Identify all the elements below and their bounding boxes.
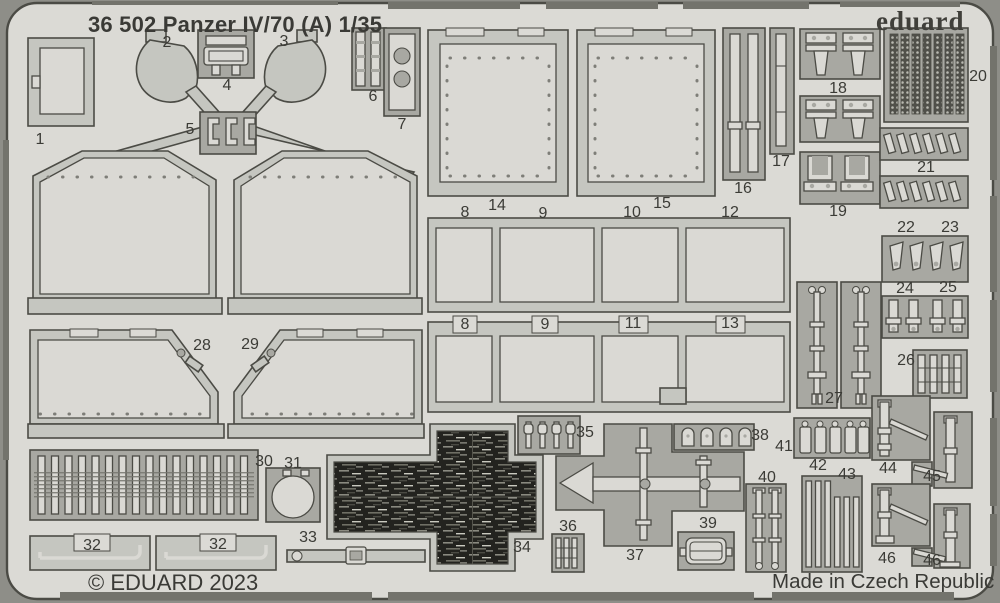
- part-number-label: 5: [186, 121, 195, 139]
- part-number-label: 37: [626, 547, 644, 565]
- part-number-label: 35: [576, 424, 594, 442]
- part-number-label: 19: [829, 203, 847, 221]
- part-number-label: 24: [896, 280, 914, 298]
- part-number-label: 1: [36, 131, 45, 149]
- part-number-label: 36: [559, 518, 577, 536]
- part-number-label: 33: [299, 529, 317, 547]
- part-number-label: 43: [838, 466, 856, 484]
- part-number-label: 8: [461, 316, 470, 334]
- part-number-label: 31: [284, 455, 302, 473]
- part-number-label: 41: [775, 438, 793, 456]
- part-number-label: 30: [255, 453, 273, 471]
- part-labels-layer: 1234567814910151216171819202122232425262…: [0, 0, 1000, 603]
- part-number-label: 9: [539, 205, 548, 223]
- part-number-label: 7: [398, 116, 407, 134]
- part-number-label: 42: [809, 457, 827, 475]
- part-number-label: 32: [83, 537, 101, 555]
- part-number-label: 21: [917, 159, 935, 177]
- part-number-label: 39: [699, 515, 717, 533]
- part-number-label: 14: [488, 197, 506, 215]
- etch-fret-scan: 36 502 Panzer IV/70 (A) 1/35 eduard © ED…: [0, 0, 1000, 603]
- part-number-label: 3: [280, 33, 289, 51]
- part-number-label: 16: [734, 180, 752, 198]
- part-number-label: 9: [541, 316, 550, 334]
- part-number-label: 34: [513, 539, 531, 557]
- part-number-label: 29: [241, 336, 259, 354]
- part-number-label: 46: [923, 552, 941, 570]
- part-number-label: 15: [653, 195, 671, 213]
- part-number-label: 4: [223, 77, 232, 95]
- part-number-label: 22: [897, 219, 915, 237]
- part-number-label: 38: [751, 427, 769, 445]
- part-number-label: 12: [721, 204, 739, 222]
- part-number-label: 32: [209, 536, 227, 554]
- part-number-label: 46: [878, 550, 896, 568]
- part-number-label: 23: [941, 219, 959, 237]
- part-number-label: 13: [721, 315, 739, 333]
- part-number-label: 10: [623, 204, 641, 222]
- part-number-label: 11: [625, 315, 642, 333]
- part-number-label: 40: [758, 469, 776, 487]
- part-number-label: 18: [829, 80, 847, 98]
- part-number-label: 6: [369, 88, 378, 106]
- part-number-label: 26: [897, 352, 915, 370]
- part-number-label: 27: [825, 390, 843, 408]
- part-number-label: 28: [193, 337, 211, 355]
- part-number-label: 20: [969, 68, 987, 86]
- part-number-label: 2: [163, 34, 172, 52]
- part-number-label: 8: [461, 204, 470, 222]
- part-number-label: 45: [923, 468, 941, 486]
- part-number-label: 17: [772, 153, 790, 171]
- part-number-label: 44: [879, 460, 897, 478]
- part-number-label: 25: [939, 279, 957, 297]
